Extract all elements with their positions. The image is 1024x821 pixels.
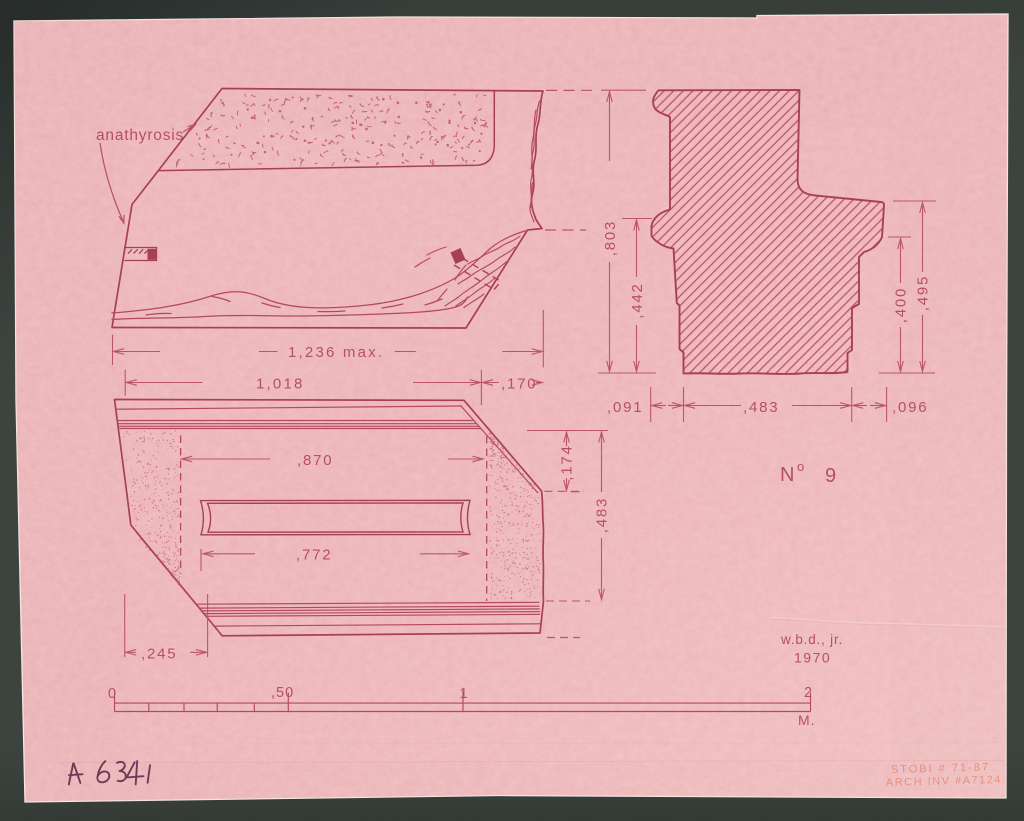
svg-text:anathyrosis: anathyrosis (96, 127, 184, 144)
svg-text:w.b.d., jr.: w.b.d., jr. (780, 632, 843, 647)
svg-text:,245: ,245 (141, 645, 177, 662)
svg-text:,400: ,400 (893, 287, 910, 323)
svg-text:M.: M. (798, 712, 816, 728)
svg-text:,174: ,174 (559, 444, 576, 480)
svg-text:,803: ,803 (602, 220, 619, 256)
svg-text:,442: ,442 (629, 282, 646, 318)
svg-text:,483: ,483 (594, 497, 611, 533)
svg-text:,483: ,483 (743, 399, 779, 416)
svg-text:,096: ,096 (892, 399, 928, 416)
svg-text:9: 9 (825, 465, 836, 487)
svg-text:0: 0 (108, 686, 117, 702)
svg-text:,870: ,870 (297, 452, 333, 469)
svg-text:,170: ,170 (501, 376, 537, 393)
svg-text:o: o (797, 459, 804, 474)
svg-text:1,018: 1,018 (256, 376, 305, 393)
svg-text:1: 1 (460, 686, 468, 702)
svg-text:,495: ,495 (915, 275, 932, 311)
svg-text:,772: ,772 (296, 547, 332, 564)
svg-text:,091: ,091 (607, 399, 643, 416)
svg-text:2: 2 (804, 685, 812, 701)
svg-text:1,236 max.: 1,236 max. (288, 344, 384, 361)
svg-text:N: N (780, 464, 796, 486)
svg-text:,50: ,50 (271, 685, 294, 701)
svg-text:1970: 1970 (794, 650, 831, 666)
